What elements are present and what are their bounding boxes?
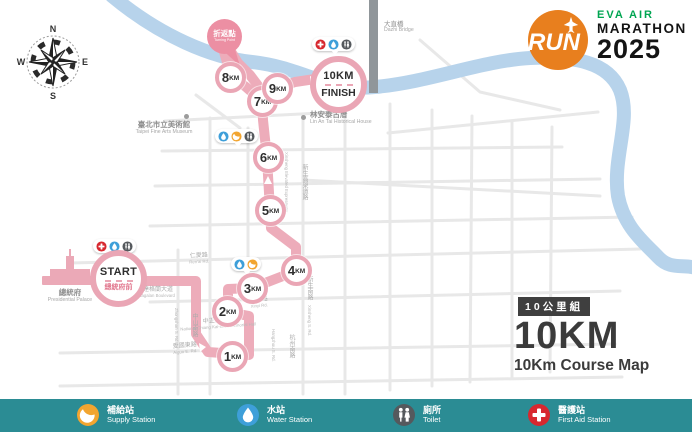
road-zhongshan: 中山南路 Zhongshan S. Rd.	[167, 295, 203, 355]
legend-first-aid: 醫護站 First Aid Station	[527, 403, 611, 427]
compass-n: N	[50, 24, 57, 34]
km-marker-8: 8KM	[215, 62, 246, 93]
dazhi-bridge-shape	[369, 0, 378, 93]
water-icon	[234, 259, 245, 270]
first-aid-icon	[527, 403, 551, 427]
course-group-badge: 10公里組	[518, 297, 590, 316]
compass-rose: N S E W	[15, 22, 91, 102]
lin-an-tai-dot	[301, 115, 306, 120]
water-icon	[236, 403, 260, 427]
logo-brand: EVA AIR	[597, 10, 687, 21]
toilet-icon	[341, 39, 352, 50]
legend-water: 水站 Water Station	[236, 403, 312, 427]
place-museum: 臺北市立美術館 Taipei Fine Arts Museum	[118, 121, 210, 136]
water-icon	[218, 131, 229, 142]
km-marker-2: 2KM	[212, 296, 243, 327]
first-aid-icon	[96, 241, 107, 252]
legend-toilet: 廁所 Toilet	[392, 403, 441, 427]
legend-bar: 補給站 Supply Station 水站 Water Station 廁所 T…	[0, 399, 692, 432]
dashed-separator	[325, 84, 353, 86]
km-marker-4: 4KM	[281, 255, 312, 286]
run-logo-icon: RUN	[527, 9, 589, 71]
place-dazhi-bridge: 大直橋 Dazhi Bridge	[384, 21, 436, 34]
course-subtitle: 10Km Course Map	[514, 358, 649, 374]
km-marker-9: 9KM	[262, 73, 293, 104]
turnaround-marker: 折返點 Turning Point	[207, 19, 242, 54]
legend-supply: 補給站 Supply Station	[76, 403, 155, 427]
course-distance: 10KM	[514, 316, 649, 358]
museum-dot	[184, 114, 189, 119]
svg-text:RUN: RUN	[528, 29, 581, 56]
first-aid-icon	[315, 39, 326, 50]
finish-marker: 10KM FINISH	[310, 56, 367, 113]
start-marker: START 總統府前	[90, 250, 147, 307]
km-marker-6: 6KM	[253, 142, 284, 173]
supply-icon	[231, 131, 242, 142]
compass-w: W	[17, 57, 26, 67]
toilet-icon	[392, 403, 416, 427]
place-lin-an-tai: 林安泰古厝 Lin An Tai Historical House	[310, 111, 400, 126]
km3-station-pill	[231, 257, 261, 271]
event-logo: RUN EVA AIR MARATHON 2025	[527, 7, 687, 77]
course-map-page: N S E W RUN EVA AIR MARATHON 2025 10公里組 …	[0, 0, 692, 432]
compass-s: S	[50, 91, 56, 101]
road-hangzhou: 杭州南路 Hangzhou S. Rd.	[264, 318, 300, 373]
course-title-block: 10公里組 10KM 10Km Course Map	[514, 297, 649, 373]
finish-station-pill	[312, 37, 355, 51]
km-marker-1: 1KM	[217, 341, 248, 372]
km6-station-pill	[215, 129, 258, 143]
water-icon	[328, 39, 339, 50]
logo-year: 2025	[597, 37, 687, 63]
toilet-icon	[244, 131, 255, 142]
road-renai: 仁愛路 Ren'ai Rd.	[183, 252, 216, 265]
supply-icon	[247, 259, 258, 270]
km-marker-3: 3KM	[237, 273, 268, 304]
km-marker-5: 5KM	[255, 195, 286, 226]
dashed-separator	[105, 280, 133, 282]
supply-icon	[76, 403, 100, 427]
compass-e: E	[82, 57, 88, 67]
road-xinsheng-s: 新生南路 Xinsheng S. Rd.	[300, 276, 318, 336]
